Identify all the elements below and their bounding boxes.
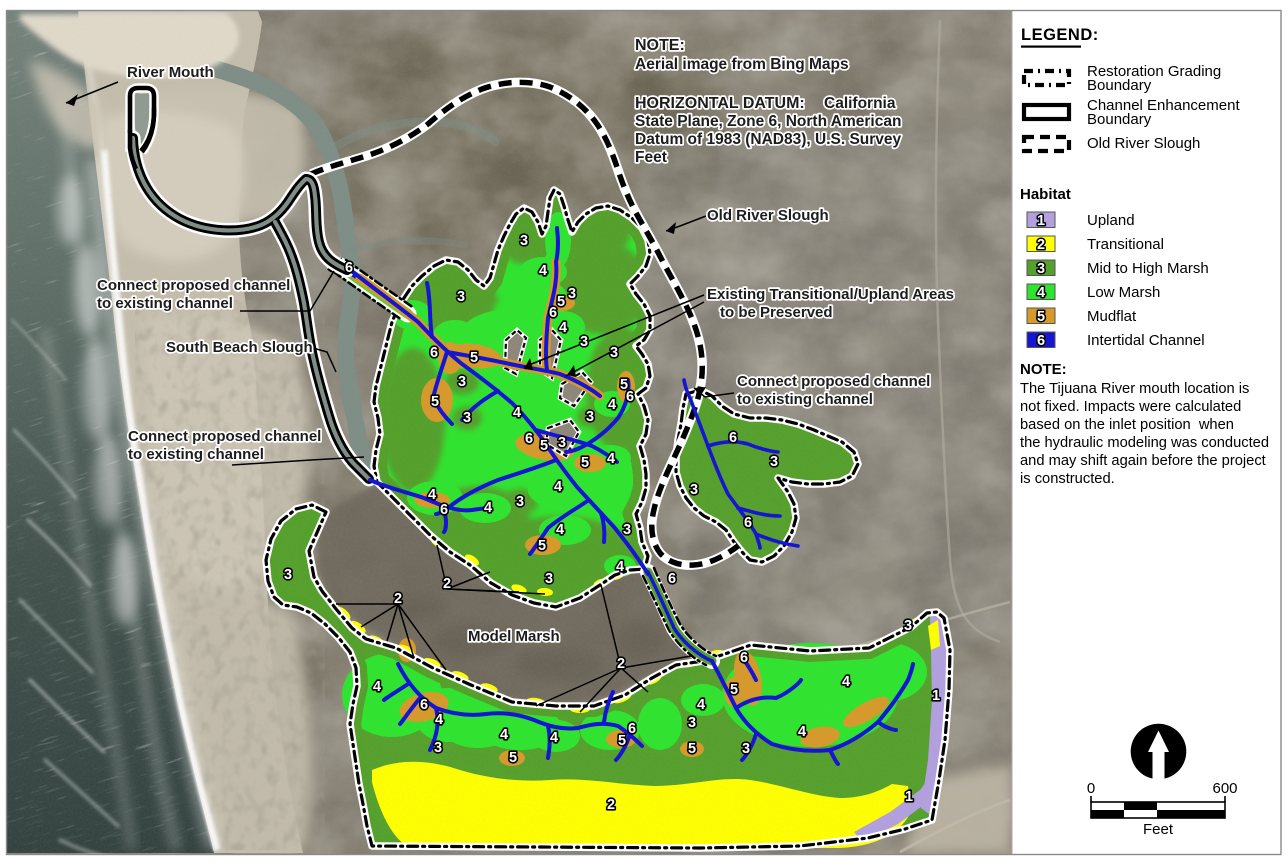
- svg-text:NOTE:: NOTE:: [1020, 361, 1067, 378]
- svg-text:5: 5: [618, 733, 626, 749]
- svg-text:Intertidal Channel: Intertidal Channel: [1087, 332, 1205, 349]
- svg-text:and may shift again before the: and may shift again before the project: [1020, 453, 1266, 469]
- svg-text:1: 1: [932, 688, 940, 704]
- svg-text:3: 3: [457, 289, 465, 305]
- svg-text:3: 3: [434, 740, 442, 756]
- svg-text:3: 3: [742, 741, 750, 757]
- svg-text:6: 6: [626, 389, 634, 405]
- svg-text:3: 3: [904, 618, 912, 634]
- svg-text:6: 6: [345, 260, 353, 276]
- svg-text:6: 6: [668, 571, 676, 587]
- svg-text:to existing channel: to existing channel: [128, 446, 264, 463]
- svg-text:based on the inlet position w: based on the inlet position when: [1020, 417, 1234, 433]
- svg-text:5: 5: [730, 682, 738, 698]
- svg-text:not fixed. Impacts were calcul: not fixed. Impacts were calculated: [1020, 399, 1241, 415]
- svg-text:Habitat: Habitat: [1020, 186, 1071, 203]
- svg-text:4: 4: [616, 559, 624, 575]
- svg-text:3: 3: [545, 571, 553, 587]
- svg-text:6: 6: [628, 721, 636, 737]
- svg-text:5: 5: [509, 750, 517, 766]
- svg-text:South Beach Slough: South Beach Slough: [166, 339, 313, 356]
- svg-text:HORIZONTAL DATUM:: HORIZONTAL DATUM:: [635, 95, 805, 112]
- svg-text:Feet: Feet: [635, 149, 667, 166]
- svg-text:LEGEND:: LEGEND:: [1021, 26, 1099, 44]
- svg-text:1: 1: [1037, 213, 1045, 229]
- svg-text:3: 3: [558, 435, 566, 451]
- svg-text:5: 5: [538, 538, 546, 554]
- svg-text:River Mouth: River Mouth: [127, 64, 214, 81]
- svg-text:Mid to High Marsh: Mid to High Marsh: [1087, 260, 1209, 277]
- svg-text:2: 2: [617, 656, 625, 672]
- svg-text:Boundary: Boundary: [1087, 77, 1152, 94]
- svg-text:3: 3: [568, 286, 576, 302]
- svg-text:4: 4: [513, 405, 521, 421]
- svg-text:600: 600: [1212, 780, 1237, 797]
- svg-text:3: 3: [688, 715, 696, 731]
- svg-text:Connect proposed channel: Connect proposed channel: [737, 373, 930, 390]
- svg-text:3: 3: [580, 334, 588, 350]
- svg-text:5: 5: [581, 455, 589, 471]
- svg-text:California: California: [824, 95, 896, 112]
- svg-text:5: 5: [1037, 309, 1045, 325]
- svg-text:NOTE:: NOTE:: [635, 37, 685, 54]
- svg-text:5: 5: [431, 394, 439, 410]
- svg-text:4: 4: [500, 727, 508, 743]
- svg-text:2: 2: [394, 591, 402, 607]
- svg-text:4: 4: [607, 451, 615, 467]
- svg-text:Existing Transitional/Upland A: Existing Transitional/Upland Areas: [707, 286, 954, 303]
- svg-text:Model Marsh: Model Marsh: [468, 628, 560, 645]
- svg-text:The Tijuana River mouth locati: The Tijuana River mouth location is: [1020, 381, 1249, 397]
- svg-text:6: 6: [549, 305, 557, 321]
- svg-text:5: 5: [557, 294, 565, 310]
- svg-text:4: 4: [608, 397, 616, 413]
- svg-text:5: 5: [540, 438, 548, 454]
- svg-text:is constructed.: is constructed.: [1020, 471, 1115, 487]
- svg-text:3: 3: [610, 345, 618, 361]
- svg-text:the hydraulic modeling was con: the hydraulic modeling was conducted: [1020, 435, 1269, 451]
- svg-text:3: 3: [1037, 261, 1045, 277]
- svg-text:3: 3: [463, 410, 471, 426]
- svg-text:Old River Slough: Old River Slough: [1087, 135, 1200, 152]
- svg-text:4: 4: [1037, 285, 1045, 301]
- svg-text:4: 4: [554, 479, 562, 495]
- svg-text:3: 3: [586, 409, 594, 425]
- svg-text:Boundary: Boundary: [1087, 111, 1152, 128]
- svg-text:6: 6: [430, 345, 438, 361]
- svg-text:Connect proposed channel: Connect proposed channel: [128, 428, 321, 445]
- svg-text:6: 6: [440, 502, 448, 518]
- svg-text:4: 4: [428, 487, 436, 503]
- svg-text:3: 3: [690, 482, 698, 498]
- svg-text:3: 3: [284, 567, 292, 583]
- svg-text:2: 2: [443, 576, 451, 592]
- svg-text:6: 6: [420, 697, 428, 713]
- svg-text:Old River Slough: Old River Slough: [707, 207, 829, 224]
- svg-text:Aerial image from Bing Maps: Aerial image from Bing Maps: [635, 56, 849, 73]
- svg-text:Upland: Upland: [1087, 212, 1135, 229]
- svg-text:Transitional: Transitional: [1087, 236, 1164, 253]
- svg-text:3: 3: [520, 233, 528, 249]
- svg-text:6: 6: [729, 430, 737, 446]
- svg-text:to be Preserved: to be Preserved: [720, 304, 833, 321]
- svg-text:6: 6: [525, 431, 533, 447]
- svg-text:5: 5: [688, 741, 696, 757]
- svg-text:3: 3: [458, 374, 466, 390]
- svg-text:4: 4: [539, 263, 547, 279]
- svg-text:0: 0: [1087, 780, 1095, 797]
- svg-text:4: 4: [842, 674, 850, 690]
- svg-text:3: 3: [770, 454, 778, 470]
- svg-text:6: 6: [740, 650, 748, 666]
- svg-text:5: 5: [470, 350, 478, 366]
- svg-text:6: 6: [744, 515, 752, 531]
- svg-text:4: 4: [697, 697, 705, 713]
- svg-text:Low Marsh: Low Marsh: [1087, 284, 1160, 301]
- svg-text:to existing channel: to existing channel: [737, 391, 873, 408]
- svg-text:3: 3: [623, 522, 631, 538]
- svg-text:3: 3: [516, 494, 524, 510]
- svg-text:to existing channel: to existing channel: [97, 295, 233, 312]
- svg-text:2: 2: [1037, 237, 1045, 253]
- svg-text:6: 6: [1037, 333, 1045, 349]
- svg-text:4: 4: [559, 320, 567, 336]
- svg-text:4: 4: [373, 679, 381, 695]
- svg-text:Datum of 1983 (NAD83), U.S. Su: Datum of 1983 (NAD83), U.S. Survey: [635, 131, 902, 148]
- svg-text:2: 2: [607, 797, 615, 813]
- svg-text:4: 4: [484, 500, 492, 516]
- svg-text:Feet: Feet: [1143, 821, 1174, 838]
- svg-text:Connect proposed channel: Connect proposed channel: [97, 277, 290, 294]
- svg-text:Mudflat: Mudflat: [1087, 308, 1137, 325]
- svg-text:4: 4: [550, 730, 558, 746]
- svg-text:State Plane, Zone 6, North Ame: State Plane, Zone 6, North American: [635, 113, 901, 130]
- svg-text:4: 4: [556, 522, 564, 538]
- svg-text:1: 1: [905, 789, 913, 805]
- svg-text:4: 4: [798, 724, 806, 740]
- svg-text:4: 4: [435, 712, 443, 728]
